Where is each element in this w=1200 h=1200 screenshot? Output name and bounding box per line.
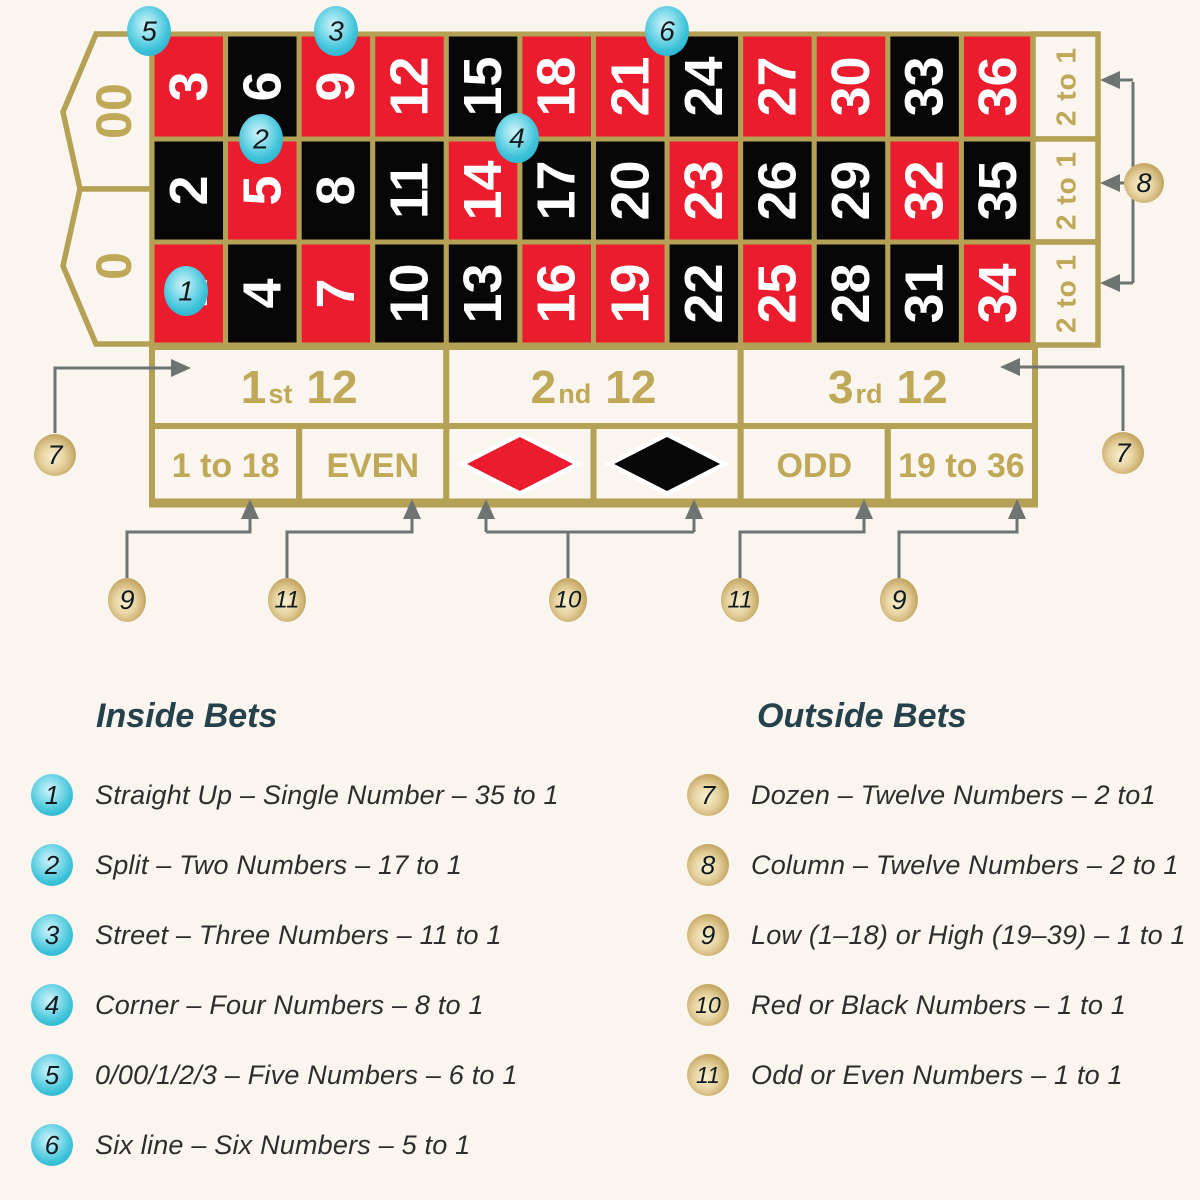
column-bet-2to1-3-label: 2 to 1 <box>1051 254 1082 333</box>
cell-31-label: 31 <box>895 263 955 323</box>
callout-arrowhead <box>1100 174 1120 192</box>
cell-14-label: 14 <box>453 160 513 220</box>
cell-28-label: 28 <box>821 263 881 323</box>
cell-16-label: 16 <box>527 263 587 323</box>
cell-4-label: 4 <box>232 278 292 308</box>
legend-badge-5: 5 <box>31 1054 73 1096</box>
legend-item-outside-7: 7Dozen – Twelve Numbers – 2 to1 <box>687 774 1156 816</box>
legend-badge-2: 2 <box>31 844 73 886</box>
legend-item-outside-11: 11Odd or Even Numbers – 1 to 1 <box>687 1054 1123 1096</box>
cell-24-label: 24 <box>674 56 734 116</box>
cell-15-label: 15 <box>453 56 513 116</box>
cell-21-label: 21 <box>600 56 660 116</box>
legend-text-7: Dozen – Twelve Numbers – 2 to1 <box>751 780 1156 811</box>
cell-23-label: 23 <box>674 160 734 220</box>
marker-2-number: 2 <box>252 124 269 155</box>
legend-badge-3: 3 <box>31 914 73 956</box>
cell-10-label: 10 <box>380 263 440 323</box>
outside-bet-19-to-36-label: 19 to 36 <box>898 447 1025 485</box>
cell-8-label: 8 <box>306 175 366 205</box>
marker-1-number: 1 <box>178 276 194 307</box>
legend-item-outside-8: 8Column – Twelve Numbers – 2 to 1 <box>687 844 1179 886</box>
cell-26-label: 26 <box>747 160 807 220</box>
legend-text-11: Odd or Even Numbers – 1 to 1 <box>751 1060 1123 1091</box>
legend-text-3: Street – Three Numbers – 11 to 1 <box>95 920 502 951</box>
legend-item-inside-3: 3Street – Three Numbers – 11 to 1 <box>31 914 502 956</box>
legend-text-9: Low (1–18) or High (19–39) – 1 to 1 <box>751 920 1186 951</box>
legend-text-4: Corner – Four Numbers – 8 to 1 <box>95 990 484 1021</box>
legend-badge-8: 8 <box>687 844 729 886</box>
legend-badge-11: 11 <box>687 1054 729 1096</box>
dozen-bet-1 <box>152 347 446 426</box>
cell-5-label: 5 <box>232 175 292 205</box>
cell-27-label: 27 <box>747 56 807 116</box>
cell-34-label: 34 <box>968 263 1028 323</box>
column-bet-2to1-1-label: 2 to 1 <box>1051 47 1082 126</box>
marker-7-2-number: 7 <box>1115 438 1131 468</box>
legend-badge-9: 9 <box>687 914 729 956</box>
outside-bets-title: Outside Bets <box>757 697 967 736</box>
cell-32-label: 32 <box>895 160 955 220</box>
cell-20-label: 20 <box>600 160 660 220</box>
marker-9-7-number: 9 <box>891 585 906 615</box>
column-bet-2to1-2-label: 2 to 1 <box>1051 151 1082 230</box>
cell-12-label: 12 <box>380 56 440 116</box>
legend-item-inside-2: 2Split – Two Numbers – 17 to 1 <box>31 844 462 886</box>
callout-arrow-line <box>899 516 1017 578</box>
cell-9-label: 9 <box>306 71 366 101</box>
marker-5-number: 5 <box>141 16 157 47</box>
outside-bet-even-label: EVEN <box>326 447 419 485</box>
cell-18-label: 18 <box>527 56 587 116</box>
cell-13-label: 13 <box>453 263 513 323</box>
cell-19-label: 19 <box>600 263 660 323</box>
legend-text-5: 0/00/1/2/3 – Five Numbers – 6 to 1 <box>95 1060 518 1091</box>
cell-36-label: 36 <box>968 56 1028 116</box>
column-bets: 2 to 12 to 12 to 1 <box>1033 34 1098 345</box>
legend-item-outside-10: 10Red or Black Numbers – 1 to 1 <box>687 984 1126 1026</box>
callout-arrow-line <box>287 516 412 578</box>
zero-cells: 000 <box>63 34 152 344</box>
cell-3-label: 3 <box>159 71 219 101</box>
marker-10-5-number: 10 <box>555 587 582 614</box>
legend-text-8: Column – Twelve Numbers – 2 to 1 <box>751 850 1179 881</box>
dozen-bets: 1st122nd123rd12 <box>152 347 1035 426</box>
outside-bet-odd-label: ODD <box>776 447 852 485</box>
cell-22-label: 22 <box>674 263 734 323</box>
dozen-bet-2 <box>446 347 740 426</box>
outside-bets-row: 1 to 18EVENODD19 to 36 <box>149 426 1038 503</box>
legend-text-10: Red or Black Numbers – 1 to 1 <box>751 990 1126 1021</box>
zero-cell-00-label: 00 <box>86 83 142 139</box>
marker-7-1-number: 7 <box>47 440 63 470</box>
marker-3-number: 3 <box>328 16 344 47</box>
cell-35-label: 35 <box>968 160 1028 220</box>
legend-item-outside-9: 9Low (1–18) or High (19–39) – 1 to 1 <box>687 914 1186 956</box>
callout-arrow-line <box>127 516 250 578</box>
legend-badge-1: 1 <box>31 774 73 816</box>
marker-8-0-number: 8 <box>1136 168 1151 198</box>
legend-item-inside-5: 50/00/1/2/3 – Five Numbers – 6 to 1 <box>31 1054 518 1096</box>
zero-cell-0-label: 0 <box>86 252 142 280</box>
legend-badge-10: 10 <box>687 984 729 1026</box>
legend-item-inside-4: 4Corner – Four Numbers – 8 to 1 <box>31 984 484 1026</box>
cell-6-label: 6 <box>232 71 292 101</box>
cell-17-label: 17 <box>527 160 587 220</box>
callout-arrow-line <box>740 516 864 578</box>
marker-4-number: 4 <box>509 123 525 154</box>
cell-30-label: 30 <box>821 56 881 116</box>
dozen-bet-3 <box>741 347 1035 426</box>
callout-arrowhead <box>1100 71 1120 89</box>
legend-badge-7: 7 <box>687 774 729 816</box>
marker-11-6-number: 11 <box>728 587 753 614</box>
cell-2-label: 2 <box>159 175 219 205</box>
number-grid: 3691215182124273033362581114172023262932… <box>152 34 1035 345</box>
legend-badge-6: 6 <box>31 1124 73 1166</box>
cell-7-label: 7 <box>306 278 366 308</box>
marker-11-4-number: 11 <box>275 587 300 614</box>
roulette-table-diagram: 000 369121518212427303336258111417202326… <box>0 0 1200 665</box>
callout-arrowhead <box>1100 274 1120 292</box>
cell-25-label: 25 <box>747 263 807 323</box>
legend-text-6: Six line – Six Numbers – 5 to 1 <box>95 1130 470 1161</box>
legend-text-2: Split – Two Numbers – 17 to 1 <box>95 850 462 881</box>
inside-bets-title: Inside Bets <box>96 697 277 736</box>
legend-text-1: Straight Up – Single Number – 35 to 1 <box>95 780 559 811</box>
marker-9-3-number: 9 <box>119 585 134 615</box>
legend-badge-4: 4 <box>31 984 73 1026</box>
legend-item-inside-1: 1Straight Up – Single Number – 35 to 1 <box>31 774 559 816</box>
cell-33-label: 33 <box>895 56 955 116</box>
outside-bet-1-to-18-label: 1 to 18 <box>172 447 280 485</box>
marker-6-number: 6 <box>659 16 675 47</box>
cell-11-label: 11 <box>380 162 440 219</box>
legend-item-inside-6: 6Six line – Six Numbers – 5 to 1 <box>31 1124 470 1166</box>
cell-29-label: 29 <box>821 160 881 220</box>
